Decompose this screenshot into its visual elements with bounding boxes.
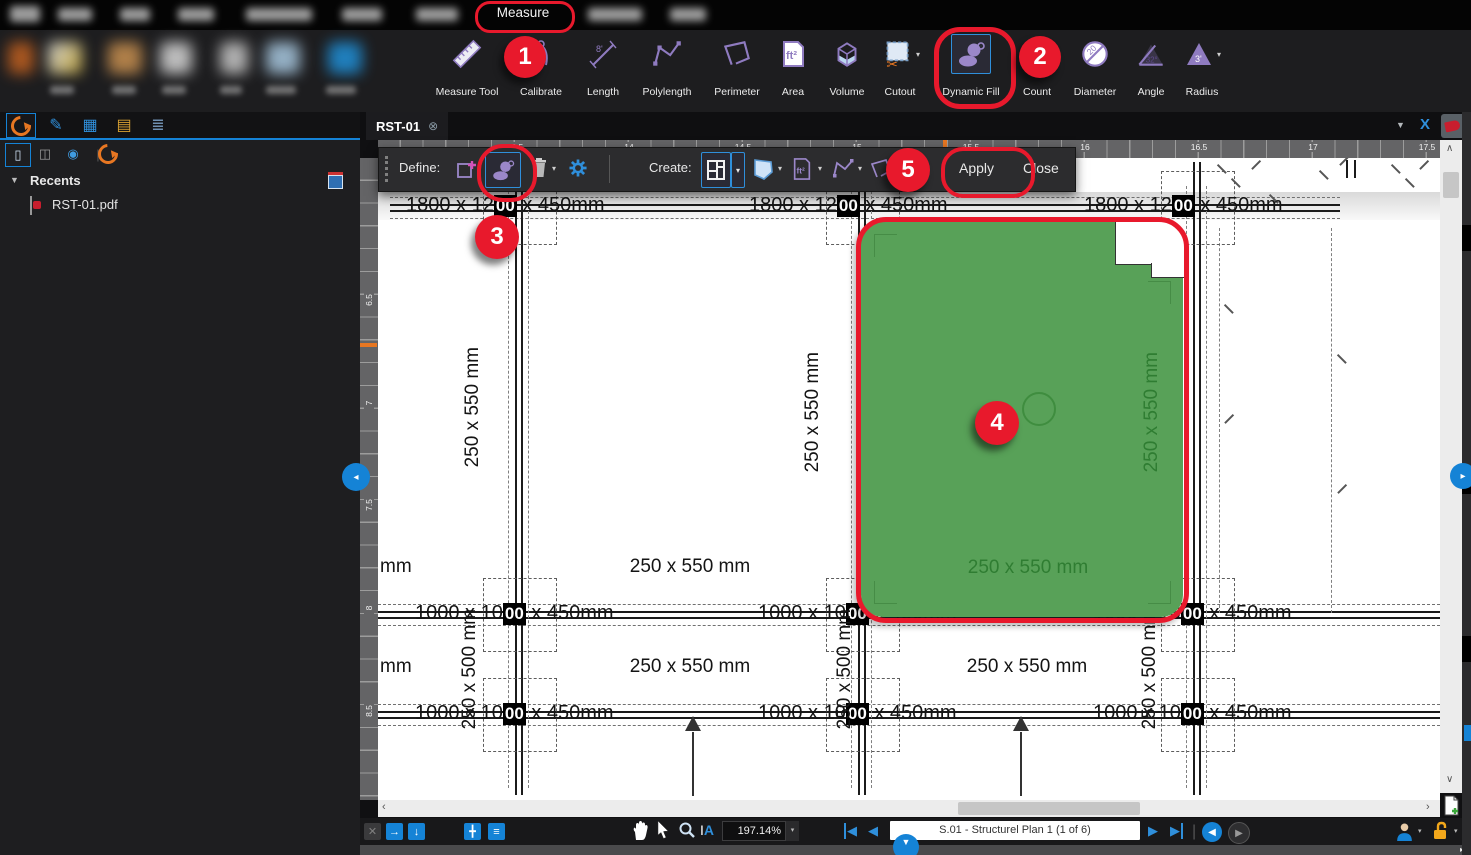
- create-area-button[interactable]: ft²: [791, 156, 813, 182]
- layers-icon: ≣: [151, 115, 164, 135]
- document-tab-label: RST-01: [376, 119, 420, 134]
- layers-tab[interactable]: ≣: [144, 113, 172, 136]
- chevron-down-icon[interactable]: ▾: [552, 164, 556, 173]
- beam-dimension-label: 250 x 550 mm: [630, 656, 750, 678]
- split-horizontal-button[interactable]: ↓: [408, 823, 425, 840]
- tool-radius[interactable]: 3' ▾ Radius: [1175, 34, 1229, 98]
- menu-item-measure[interactable]: Measure: [484, 5, 562, 20]
- angle-icon: 32°: [1134, 34, 1168, 74]
- polylength-icon: [650, 34, 684, 74]
- ribbon-blurred-icon-4[interactable]: [160, 42, 192, 74]
- upstand-dimension-label-vertical: 250 x 500 mm: [1139, 609, 1161, 729]
- disabled-sync-button: ✕: [364, 823, 381, 840]
- chevron-down-icon[interactable]: ▼: [10, 175, 19, 185]
- clipped-dimension-label: mm: [380, 556, 412, 578]
- chevron-down-icon[interactable]: ▾: [818, 164, 822, 173]
- hand-icon: [630, 820, 650, 842]
- length-icon: 8': [587, 34, 619, 74]
- ruler-tick-label: 7.5: [364, 493, 374, 517]
- cutout-icon: ✂ ▾: [880, 34, 920, 74]
- scroll-right-arrow[interactable]: ›: [1426, 801, 1430, 813]
- chevron-down-icon[interactable]: ▾: [858, 164, 862, 173]
- tool-chest-icon: ▤: [116, 115, 131, 135]
- zoom-tool-button[interactable]: [678, 821, 696, 844]
- fill-region-highlight-border: [856, 217, 1189, 623]
- edge-mark-active: [1464, 725, 1471, 741]
- beam-dimension-label: 250 x 550 mm: [630, 556, 750, 578]
- ruler-tick-label: 16.5: [1189, 142, 1210, 152]
- area-icon: ft²: [778, 34, 808, 74]
- column-symbol: 00: [837, 195, 860, 217]
- document-tab[interactable]: RST-01 ⊗: [366, 112, 448, 140]
- diameter-icon: 20: [1078, 34, 1112, 74]
- status-divider: |: [1192, 823, 1196, 841]
- open-recent-button[interactable]: [96, 143, 120, 165]
- tool-length[interactable]: 8' Length: [580, 34, 626, 98]
- measure-ribbon: Measure Tool Calibrate 8' Length Polylen…: [0, 30, 1471, 112]
- select-tool-button[interactable]: [656, 820, 670, 845]
- ruler-tick-label: 17.5: [1417, 142, 1438, 152]
- tool-area[interactable]: ft² Area: [773, 34, 813, 98]
- ribbon-blurred-label: [112, 86, 136, 94]
- apply-button[interactable]: Apply: [959, 160, 994, 176]
- upstand-dimension-label-vertical: 250 x 500 mm: [459, 609, 481, 729]
- chevron-down-icon[interactable]: ▾: [778, 164, 782, 173]
- beam-dimension-label-vertical: 250 x 550 mm: [802, 352, 824, 472]
- edge-mark: [1462, 225, 1471, 251]
- ruler-tick-label: 16: [1078, 142, 1091, 152]
- column-symbol: 00: [494, 195, 517, 217]
- tool-label: Measure Tool: [436, 86, 499, 98]
- zoom-dropdown-button[interactable]: ▾: [786, 821, 799, 841]
- file-access-icon: [7, 111, 35, 139]
- security-button[interactable]: [1430, 820, 1450, 847]
- drawing-canvas[interactable]: 1800 x 1200 x 450mm 1800 x 1200 x 450mm …: [378, 158, 1440, 800]
- create-spaces-dropdown[interactable]: ▾: [731, 152, 745, 188]
- next-view-button[interactable]: ▶: [1228, 822, 1250, 844]
- svg-text:8': 8': [596, 44, 603, 54]
- footing-dimension-label: 1000 x 1000 x 450mm: [758, 702, 957, 725]
- area-icon: ft²: [791, 156, 813, 182]
- create-polylength-button[interactable]: [831, 156, 855, 182]
- scroll-down-arrow[interactable]: ∨: [1446, 774, 1453, 785]
- drive-icon: ◫: [39, 146, 51, 162]
- zoom-level-input[interactable]: 197.14%: [722, 821, 786, 841]
- tool-label: Area: [782, 86, 804, 98]
- dynamic-fill-icon: [490, 157, 516, 183]
- document-icon: ▯: [14, 147, 21, 163]
- tool-label: Perimeter: [714, 86, 760, 98]
- svg-text:3': 3': [1195, 54, 1202, 64]
- menu-item-blurred-5[interactable]: [342, 8, 382, 21]
- beam-dimension-label-vertical: 250 x 550 mm: [462, 347, 484, 467]
- ruler-tick-label: 6.5: [364, 288, 374, 312]
- volume-icon: [830, 34, 864, 74]
- create-label: Create:: [649, 160, 692, 175]
- menu-item-blurred-4[interactable]: [246, 8, 312, 21]
- cursor-icon: [656, 820, 670, 840]
- menu-bar: Measure: [0, 0, 1471, 30]
- collapse-left-panel-button[interactable]: ◂: [342, 463, 370, 491]
- ribbon-blurred-label: [266, 86, 296, 94]
- ribbon-blurred-icon-2[interactable]: [48, 42, 82, 74]
- horizontal-scrollbar[interactable]: ‹ ›: [378, 800, 1440, 817]
- first-page-button[interactable]: ◀: [844, 823, 857, 839]
- svg-text:ft²: ft²: [786, 50, 797, 62]
- app-logo[interactable]: [10, 6, 40, 22]
- upstand-dimension-label-vertical: 250 x 500 mm: [834, 609, 856, 729]
- trash-icon: [529, 156, 549, 180]
- left-panel: ✎ ▦ ▤ ≣ ▯ ◫ ◉ | ▼ Recents RST-01.pdf: [0, 112, 360, 855]
- antenna-icon: ◉: [67, 146, 78, 162]
- thumbnails-tab[interactable]: ▦: [76, 113, 104, 136]
- tool-label: Length: [587, 86, 619, 98]
- svg-text:ft²: ft²: [797, 167, 805, 176]
- tool-polylength[interactable]: Polylength: [635, 34, 699, 98]
- space-icon: [751, 156, 775, 182]
- text-select-button[interactable]: IA: [700, 822, 714, 838]
- chevron-down-icon[interactable]: ▾: [1454, 827, 1458, 835]
- recent-file-item[interactable]: RST-01.pdf: [0, 196, 360, 216]
- polylength-icon: [831, 156, 855, 182]
- create-spaces-button[interactable]: [701, 152, 731, 188]
- ribbon-blurred-label: [326, 86, 356, 94]
- column-symbol: 00: [1181, 703, 1204, 725]
- ribbon-blurred-label: [162, 86, 186, 94]
- pdf-file-icon: [30, 197, 32, 215]
- step-5-badge: 5: [886, 148, 930, 192]
- measure-tool-icon: [450, 34, 484, 74]
- ribbon-blurred-label: [220, 86, 242, 94]
- red-pin-icon: [1444, 120, 1461, 133]
- fill-settings-button[interactable]: [567, 157, 589, 179]
- menu-item-blurred-1[interactable]: [58, 8, 92, 21]
- ruler-tick-label: 8.5: [364, 699, 374, 723]
- svg-text:✂: ✂: [886, 57, 898, 71]
- pan-tool-button[interactable]: [630, 820, 650, 847]
- gear-icon: [567, 157, 589, 179]
- footing-dimension-label: 1800 x 1200 x 450mm: [749, 194, 948, 217]
- dynamic-fill-toolbar: Define: ▾ Create: ▾ ▾ ft² ▾ ▾ Apply Clos…: [378, 147, 1076, 192]
- account-button[interactable]: [1394, 821, 1415, 847]
- previous-view-button[interactable]: ◀: [1202, 822, 1222, 842]
- column-symbol: 00: [1172, 195, 1195, 217]
- svg-text:32°: 32°: [1146, 56, 1158, 65]
- page-label-box[interactable]: S.01 - Structurel Plan 1 (1 of 6): [890, 821, 1140, 840]
- unlock-icon: [1430, 820, 1450, 842]
- revu-file-icon: [94, 140, 122, 168]
- drive-button[interactable]: ◫: [33, 143, 57, 165]
- menu-item-blurred-7[interactable]: [588, 8, 642, 21]
- cursor-position-marker: [360, 343, 377, 347]
- tool-label: Calibrate: [520, 86, 562, 98]
- ribbon-blurred-icon-3[interactable]: [108, 42, 142, 74]
- tool-volume[interactable]: Volume: [823, 34, 871, 98]
- markups-list-tab[interactable]: ✎: [42, 113, 70, 136]
- delete-boundary-button[interactable]: [529, 156, 549, 180]
- recents-label: Recents: [30, 173, 81, 188]
- footing-dimension-label: 1000 x 1000 x 450mm: [415, 602, 614, 625]
- chevron-down-icon[interactable]: ▾: [916, 50, 920, 59]
- pen-icon: ✎: [49, 115, 62, 135]
- file-access-tab[interactable]: [6, 113, 36, 138]
- ribbon-blurred-icon-7[interactable]: [328, 42, 362, 74]
- document-tab-bar: RST-01 ⊗ ▼ X: [360, 112, 1471, 140]
- tool-label: Volume: [829, 86, 864, 98]
- ruler-tick-label: 8: [364, 596, 374, 620]
- footing-dimension-label: 1800 x 1200 x 450mm: [406, 194, 605, 217]
- scroll-up-arrow[interactable]: ∧: [1446, 143, 1453, 154]
- studio-button[interactable]: ◉: [61, 143, 85, 165]
- menu-item-blurred-3[interactable]: [178, 8, 214, 21]
- clipped-dimension-label: mm: [380, 656, 412, 678]
- step-2-badge: 2: [1019, 36, 1061, 78]
- close-button[interactable]: Close: [1023, 160, 1059, 176]
- ribbon-blurred-label: [50, 86, 74, 94]
- footing-dimension-label: 1000 x 1000 x 450mm: [1093, 702, 1292, 725]
- ribbon-blurred-icon-5[interactable]: [220, 42, 248, 74]
- dynamic-fill-define-button[interactable]: [485, 152, 521, 188]
- ribbon-blurred-icon-1[interactable]: [8, 42, 34, 74]
- vertical-scroll-thumb[interactable]: [1443, 172, 1459, 198]
- grid-icon: ▦: [82, 115, 97, 135]
- radius-icon: 3' ▾: [1183, 34, 1221, 74]
- new-page-button[interactable]: [1441, 795, 1462, 816]
- step-4-badge: 4: [975, 401, 1019, 445]
- expand-bottom-panel-button[interactable]: ▼: [893, 834, 919, 855]
- fit-width-button[interactable]: ≡: [488, 823, 505, 840]
- split-vertical-button[interactable]: →: [386, 823, 403, 840]
- menu-item-blurred-8[interactable]: [670, 8, 706, 21]
- add-boundary-button[interactable]: [455, 158, 477, 180]
- step-1-badge: 1: [504, 36, 546, 78]
- tab-list-dropdown-icon[interactable]: ▼: [1396, 120, 1405, 130]
- beam-dimension-label: 250 x 550 mm: [967, 656, 1087, 678]
- tool-dynamic-fill[interactable]: Dynamic Fill: [938, 34, 1004, 98]
- scroll-left-arrow[interactable]: ‹: [382, 801, 386, 813]
- revu-application-window: Measure Measure Tool Calibrate: [0, 0, 1471, 855]
- tool-label: Angle: [1138, 86, 1165, 98]
- fit-page-button[interactable]: ╋: [464, 823, 481, 840]
- tool-label: Polylength: [642, 86, 691, 98]
- dynamic-fill-selected-frame: [951, 34, 991, 74]
- avatar-icon: [1394, 821, 1415, 842]
- close-tab-icon[interactable]: ⊗: [428, 119, 438, 133]
- tool-diameter[interactable]: 20 Diameter: [1068, 34, 1122, 98]
- chevron-down-icon[interactable]: ▾: [1217, 50, 1221, 59]
- tool-label: Cutout: [885, 86, 916, 98]
- tool-measure-tool[interactable]: Measure Tool: [432, 34, 502, 98]
- tool-label: Count: [1023, 86, 1051, 98]
- toolbar-grip-handle[interactable]: [385, 156, 388, 182]
- define-label: Define:: [399, 160, 440, 175]
- calendar-icon[interactable]: [328, 172, 343, 189]
- previous-page-button[interactable]: ◀: [868, 823, 878, 839]
- tool-label: Diameter: [1074, 86, 1117, 98]
- create-space-button[interactable]: [751, 156, 775, 182]
- edge-mark: [1462, 636, 1471, 662]
- last-page-button[interactable]: ▶: [1170, 823, 1183, 839]
- menu-item-blurred-2[interactable]: [120, 8, 150, 21]
- tool-angle[interactable]: 32° Angle: [1131, 34, 1171, 98]
- tool-label: Dynamic Fill: [942, 86, 999, 98]
- step-3-badge: 3: [475, 215, 519, 259]
- add-boundary-icon: [455, 158, 477, 180]
- close-document-icon[interactable]: X: [1420, 116, 1430, 133]
- ruler-tick-label: 17: [1306, 142, 1319, 152]
- footing-dimension-label: 1800 x 1200 x 450mm: [1084, 194, 1283, 217]
- column-symbol: 00: [503, 703, 526, 725]
- chevron-down-icon[interactable]: ▾: [1418, 827, 1422, 835]
- tool-perimeter[interactable]: Perimeter: [707, 34, 767, 98]
- tool-label: Radius: [1186, 86, 1219, 98]
- footing-dimension-label: 1000 x 1000 x 450mm: [415, 702, 614, 725]
- ribbon-blurred-icon-6[interactable]: [266, 42, 300, 74]
- expand-right-panel-button[interactable]: ▸: [1450, 463, 1471, 489]
- column-symbol: 00: [503, 603, 526, 625]
- panel-tab-row: ✎ ▦ ▤ ≣: [0, 112, 360, 140]
- perimeter-icon: [720, 34, 754, 74]
- ruler-tick-label: 7: [364, 391, 374, 415]
- spaces-icon: [706, 159, 726, 181]
- recents-header[interactable]: ▼ Recents: [0, 172, 360, 192]
- horizontal-scroll-thumb[interactable]: [958, 802, 1140, 815]
- tool-cutout[interactable]: ✂ ▾ Cutout: [872, 34, 928, 98]
- recent-file-name: RST-01.pdf: [52, 197, 118, 212]
- dynamic-fill-icon: [955, 38, 987, 70]
- toolbar-divider: [609, 155, 610, 183]
- menu-item-blurred-6[interactable]: [416, 8, 458, 21]
- tool-chest-tab[interactable]: ▤: [110, 113, 138, 136]
- next-page-button[interactable]: ▶: [1148, 823, 1158, 839]
- file-access-toolbar: ▯ ◫ ◉ |: [0, 142, 360, 168]
- recents-view-button[interactable]: ▯: [5, 143, 31, 167]
- magnifier-icon: [678, 821, 696, 839]
